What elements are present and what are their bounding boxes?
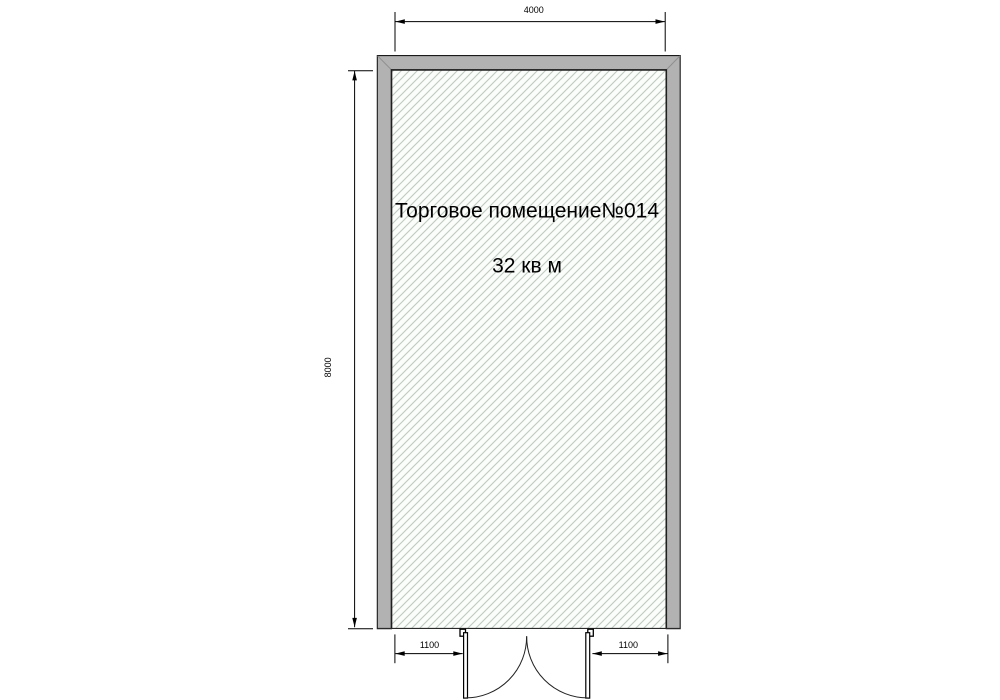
svg-text:8000: 8000 xyxy=(323,357,333,377)
svg-text:4000: 4000 xyxy=(524,5,544,15)
svg-text:32 кв м: 32 кв м xyxy=(492,255,562,278)
svg-text:1100: 1100 xyxy=(619,640,638,650)
svg-text:Торговое помещение№014: Торговое помещение№014 xyxy=(395,200,659,223)
svg-text:1100: 1100 xyxy=(420,640,439,650)
